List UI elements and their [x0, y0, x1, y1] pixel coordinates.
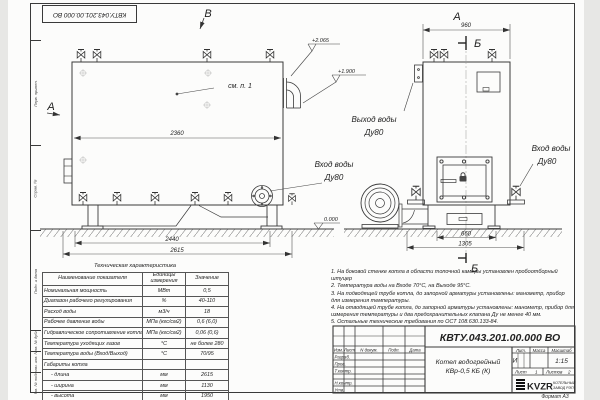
tb-lit-h: Лит. [515, 348, 526, 353]
tb-sheets-value: 2 [567, 370, 571, 375]
kvzr-logo-sub1: КОТЕЛЬНЫЙ [553, 381, 576, 385]
valve-icon [77, 50, 85, 63]
table-header-row: Наименование показателя Единицы измерени… [43, 273, 229, 286]
tb-utv: Утв. [335, 388, 345, 393]
side-flange [64, 159, 72, 183]
outlet-leader [404, 83, 413, 111]
valve-icon [430, 50, 438, 63]
section-letter-top: Б [474, 38, 481, 50]
table-row: Гидравлическое сопротивление котлаМПа (к… [43, 328, 229, 339]
table-row: Температура уходящих газов°Сне более 280 [43, 338, 229, 349]
valve-icon [266, 50, 274, 63]
outlet-flange [415, 65, 423, 82]
table-row: - высотамм1950 [43, 391, 229, 400]
valve-icon [289, 194, 296, 205]
table-row: - ширинамм1130 [43, 380, 229, 391]
main-view [64, 62, 301, 229]
ground-main [40, 229, 334, 237]
tb-h-podp: Подп. [388, 348, 399, 353]
boiler-front-body [423, 62, 510, 205]
dim-960: 960 [461, 23, 472, 29]
inlet-right-leader [520, 164, 533, 186]
elev-1900: +1.900 [338, 69, 356, 75]
drawing-sheet: Перв. примен. Справ. № Подп. и дата Инв.… [0, 0, 600, 400]
dim-1305: 1305 [458, 242, 472, 248]
note-line: 1. На боковой стенке котла в области топ… [331, 269, 575, 283]
inlet-label: Вход воды [315, 160, 354, 169]
table-row: Габариты котла [43, 359, 229, 370]
note-line: 4. На отводящей трубе котла, до запорной… [331, 305, 575, 319]
valve-icon [151, 193, 159, 206]
ground-front [344, 229, 562, 237]
tech-table: Наименование показателя Единицы измерени… [42, 272, 229, 400]
tb-scale-value: 1:15 [555, 358, 568, 365]
table-row: Диапазон рабочего регулирования%40-110 [43, 296, 229, 307]
dim-2360: 2360 [169, 131, 184, 137]
view-letter-a-top: А [452, 11, 460, 23]
outlet-label-dn: Ду80 [364, 128, 384, 137]
table-row: Номинальная мощностьМВт0,5 [43, 286, 229, 297]
col-header: Наименование показателя [43, 273, 143, 286]
valve-icon [79, 193, 87, 206]
product-model: КВр-0,5 КБ (К) [446, 368, 491, 375]
valve-icon [512, 186, 520, 200]
tb-h-list: Лист [343, 348, 355, 353]
view-letter-a-left: А [46, 101, 54, 113]
tb-sheet-label: Лист [514, 370, 527, 375]
view-arrow-a [47, 113, 60, 115]
tb-sheets-label: Листов [545, 370, 563, 375]
tb-h-data: Дата [408, 348, 421, 353]
valve-icon [113, 193, 121, 206]
elev-2065: +2.065 [312, 38, 330, 44]
base-ashbox [423, 205, 500, 229]
tb-mass-h: Масса [533, 348, 546, 353]
see-note-label: см. п. 1 [228, 83, 252, 90]
dim-2440: 2440 [164, 237, 179, 243]
outlet-label: Выход воды [352, 115, 397, 124]
format-label: Формат А3 [530, 394, 580, 400]
padlock-icon [460, 173, 467, 182]
product-name: Котел водогрейный [436, 358, 501, 366]
technical-notes: 1. На боковой стенке котла в области топ… [331, 269, 575, 327]
note-line: 5. Остальные технические требования по О… [331, 319, 575, 326]
tb-sheet-value: 1 [535, 370, 538, 375]
valve-icon [203, 50, 211, 63]
tb-tkontr: Т.контр. [335, 369, 352, 374]
col-header: Единицы измерения [143, 273, 186, 286]
doc-number: КВТУ.043.201.00.000 ВО [440, 332, 560, 344]
front-dimensions [407, 24, 524, 251]
view-arrow-v [200, 18, 204, 29]
inlet-flange [252, 186, 273, 207]
valve-icon [440, 50, 448, 63]
outlet-elbow [284, 78, 301, 108]
left-valve-base [408, 200, 425, 204]
tb-prov: Пров. [335, 362, 346, 367]
table-title: Техническая характеристика [42, 263, 228, 269]
kvzr-logo-icon [516, 379, 525, 390]
table-row: Температура воды (Вход/Выход)°С70/95 [43, 349, 229, 360]
upper-hatch [477, 72, 500, 92]
tb-h-izm: Изм. [334, 348, 343, 353]
inlet-right-label-dn: Ду80 [537, 157, 557, 166]
valve-icon [488, 50, 496, 63]
center-marks [79, 69, 212, 164]
see-note-leader [176, 88, 214, 95]
main-top-valves [77, 50, 274, 63]
dim-660: 660 [461, 232, 472, 238]
kvzr-logo-text: KVZR [527, 382, 553, 393]
elev-zero: 0.000 [324, 217, 339, 223]
tb-razrab: Разраб. [335, 355, 351, 360]
valve-icon [224, 193, 232, 206]
note-line: 2. Температура воды на Входе 70°С, на Вы… [331, 283, 575, 290]
table-row: - длинамм2615 [43, 370, 229, 381]
note-line: 3. На подводящей трубе котла, до запорно… [331, 291, 575, 305]
valve-icon [191, 193, 199, 206]
view-letter-v: В [204, 8, 211, 20]
support-legs [82, 205, 282, 229]
inlet-right-label: Вход воды [532, 144, 571, 153]
dim-2615: 2615 [169, 248, 184, 254]
inlet-leader [270, 183, 322, 191]
kvzr-logo-sub2: ЗАВОД РЭП [553, 386, 574, 390]
valve-icon [412, 186, 420, 200]
col-header: Значение [186, 273, 229, 286]
table-row: Рабочее давление водыМПа (кгс/см2)0,6 (6… [43, 317, 229, 328]
table-row: Расход водым3/ч18 [43, 307, 229, 318]
tb-scale-h: Масштаб [551, 348, 572, 353]
tb-lit-value: И [513, 358, 518, 365]
valve-icon [93, 50, 101, 63]
tb-h-dokum: N докум. [360, 348, 377, 353]
inlet-label-dn: Ду80 [324, 173, 344, 182]
tb-nkontr: Н.контр. [335, 381, 353, 386]
